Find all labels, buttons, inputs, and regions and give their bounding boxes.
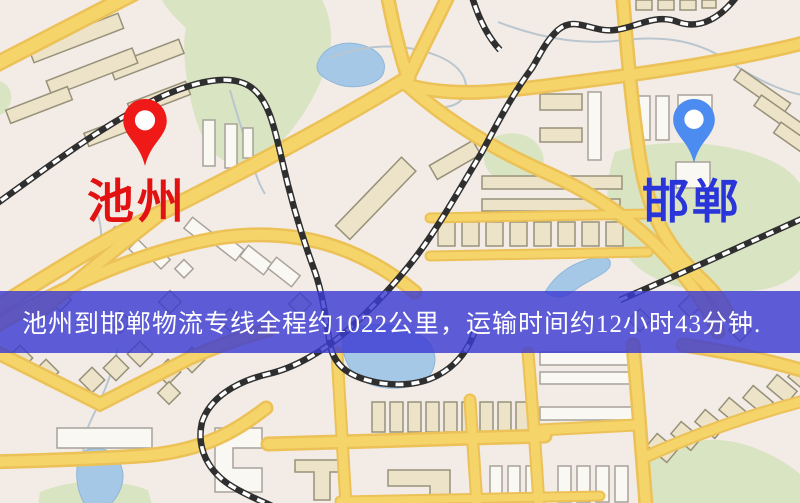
destination-pin-icon [668,98,720,165]
route-info-text: 池州到邯郸物流专线全程约1022公里，运输时间约12小时43分钟. [0,304,761,340]
pin-hole [135,110,155,130]
origin-pin-icon [118,98,172,168]
origin-city-label: 池州 [87,180,187,227]
railway-top-spur [470,0,500,50]
destination-city-label: 邯郸 [642,180,742,227]
pin-hole [684,110,703,129]
route-info-banner: 池州到邯郸物流专线全程约1022公里，运输时间约12小时43分钟. [0,291,800,353]
logistics-route-map: 池州 邯郸 池州到邯郸物流专线全程约1022公里，运输时间约12小时43分钟. [0,0,800,503]
map-background [0,0,800,503]
